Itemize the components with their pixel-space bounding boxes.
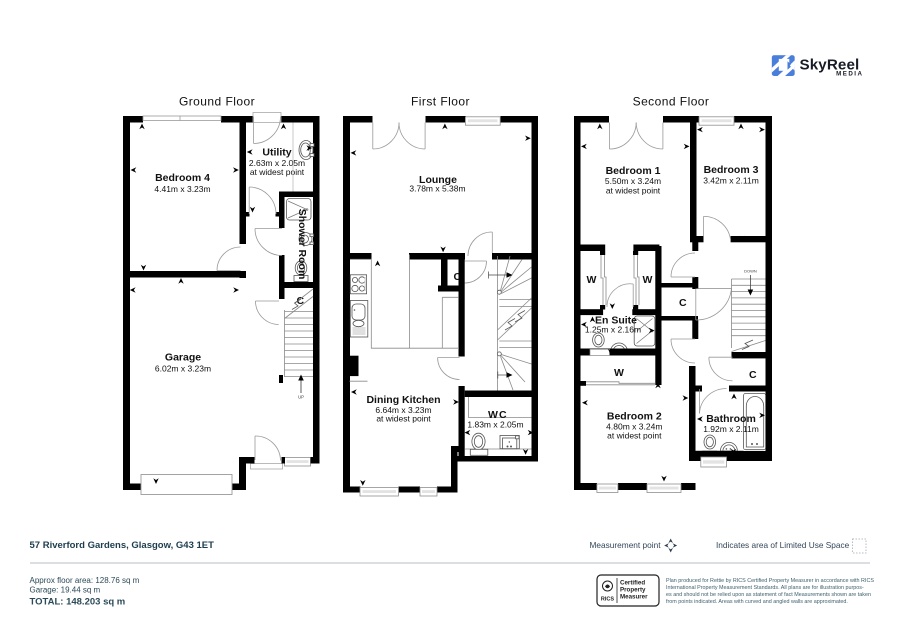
- svg-text:C: C: [749, 369, 757, 381]
- svg-text:Measurement point: Measurement point: [590, 540, 662, 550]
- svg-text:C: C: [679, 297, 687, 309]
- svg-text:at widest point: at widest point: [250, 167, 305, 177]
- svg-text:W: W: [587, 274, 597, 286]
- svg-text:Measurer: Measurer: [620, 594, 648, 601]
- svg-text:Second Floor: Second Floor: [633, 95, 710, 109]
- svg-text:Shower Room: Shower Room: [296, 209, 308, 280]
- svg-text:Garage: Garage: [165, 352, 201, 364]
- svg-text:Bedroom 3: Bedroom 3: [704, 164, 759, 176]
- svg-text:International Property Measur: International Property Measurement Stand…: [666, 585, 864, 591]
- svg-text:es and should not be relied up: es and should not be relied upon as stat…: [666, 592, 871, 598]
- svg-text:MEDIA: MEDIA: [836, 71, 863, 78]
- svg-text:6.02m x 3.23m: 6.02m x 3.23m: [155, 364, 211, 374]
- svg-text:at widest point: at widest point: [376, 414, 431, 424]
- svg-text:1.92m x 2.11m: 1.92m x 2.11m: [703, 424, 759, 434]
- svg-text:UP: UP: [298, 395, 304, 400]
- svg-text:Garage: 19.44 sq m: Garage: 19.44 sq m: [30, 586, 101, 595]
- svg-text:First Floor: First Floor: [411, 95, 470, 109]
- svg-text:1.25m x 2.16m: 1.25m x 2.16m: [585, 325, 641, 335]
- svg-text:Bedroom 4: Bedroom 4: [155, 172, 210, 184]
- svg-text:4.41m x 3.23m: 4.41m x 3.23m: [154, 184, 210, 194]
- svg-text:5.50m x 3.24m: 5.50m x 3.24m: [605, 176, 661, 186]
- svg-text:DOWN: DOWN: [744, 269, 757, 274]
- svg-text:Ground Floor: Ground Floor: [179, 95, 255, 109]
- svg-text:RICS: RICS: [601, 597, 614, 603]
- svg-text:Plan produced for Rettie by RI: Plan produced for Rettie by RICS Certifi…: [666, 578, 874, 584]
- svg-text:Indicates area of Limited Use: Indicates area of Limited Use Space: [716, 540, 850, 550]
- svg-text:Property: Property: [620, 587, 646, 594]
- svg-text:W: W: [643, 274, 653, 286]
- svg-text:1.83m x 2.05m: 1.83m x 2.05m: [467, 420, 523, 430]
- svg-text:Utility: Utility: [262, 147, 291, 159]
- svg-text:TOTAL: 148.203 sq m: TOTAL: 148.203 sq m: [30, 597, 126, 608]
- svg-text:at widest point: at widest point: [606, 186, 661, 196]
- svg-text:3.42m x 2.11m: 3.42m x 2.11m: [703, 176, 759, 186]
- svg-text:3.78m x 5.38m: 3.78m x 5.38m: [409, 184, 465, 194]
- svg-text:Certified: Certified: [620, 580, 645, 587]
- svg-text:57 Riverford Gardens, Glasgow,: 57 Riverford Gardens, Glasgow, G43 1ET: [30, 540, 215, 551]
- svg-text:at widest point: at widest point: [607, 431, 662, 441]
- svg-text:Approx floor area: 128.76 sq m: Approx floor area: 128.76 sq m: [30, 576, 140, 585]
- svg-text:from points indicated. Areas w: from points indicated. Areas with curved…: [666, 599, 848, 605]
- svg-text:W: W: [614, 367, 624, 379]
- svg-text:Dining Kitchen: Dining Kitchen: [366, 394, 440, 406]
